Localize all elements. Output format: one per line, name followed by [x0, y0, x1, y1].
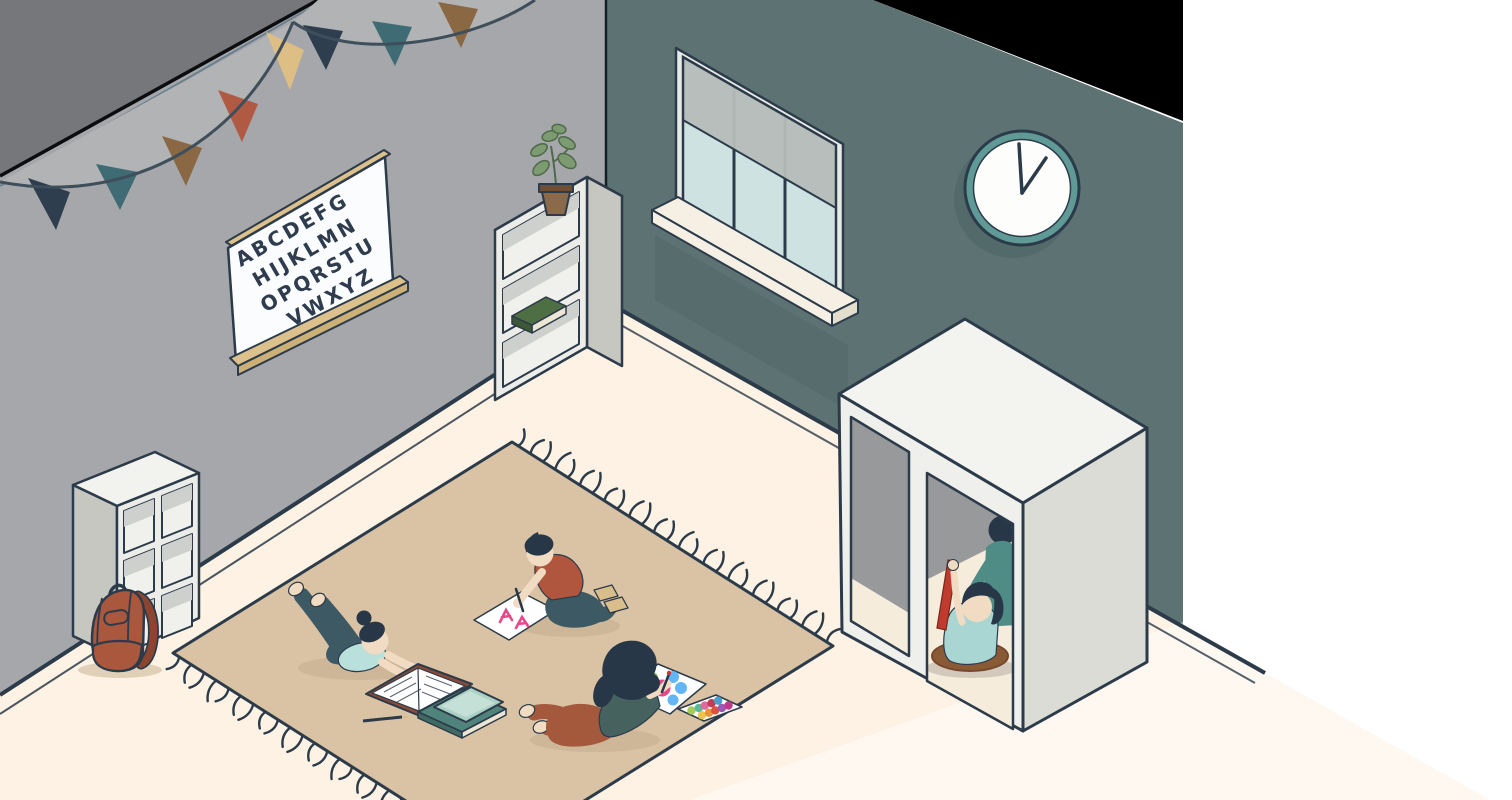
playhouse-left-opening — [851, 417, 909, 656]
classroom-illustration: ABCDEFG HIJKLMN OPQRSTU VWXYZ — [0, 0, 1512, 800]
plant-pot-rim — [539, 184, 573, 192]
plant-pot — [542, 192, 570, 215]
hair-bun — [357, 611, 372, 626]
backpack-pocket — [93, 641, 142, 671]
scene-canvas: ABCDEFG HIJKLMN OPQRSTU VWXYZ — [0, 0, 1512, 800]
hand — [948, 560, 959, 571]
brush-tip — [667, 671, 671, 675]
